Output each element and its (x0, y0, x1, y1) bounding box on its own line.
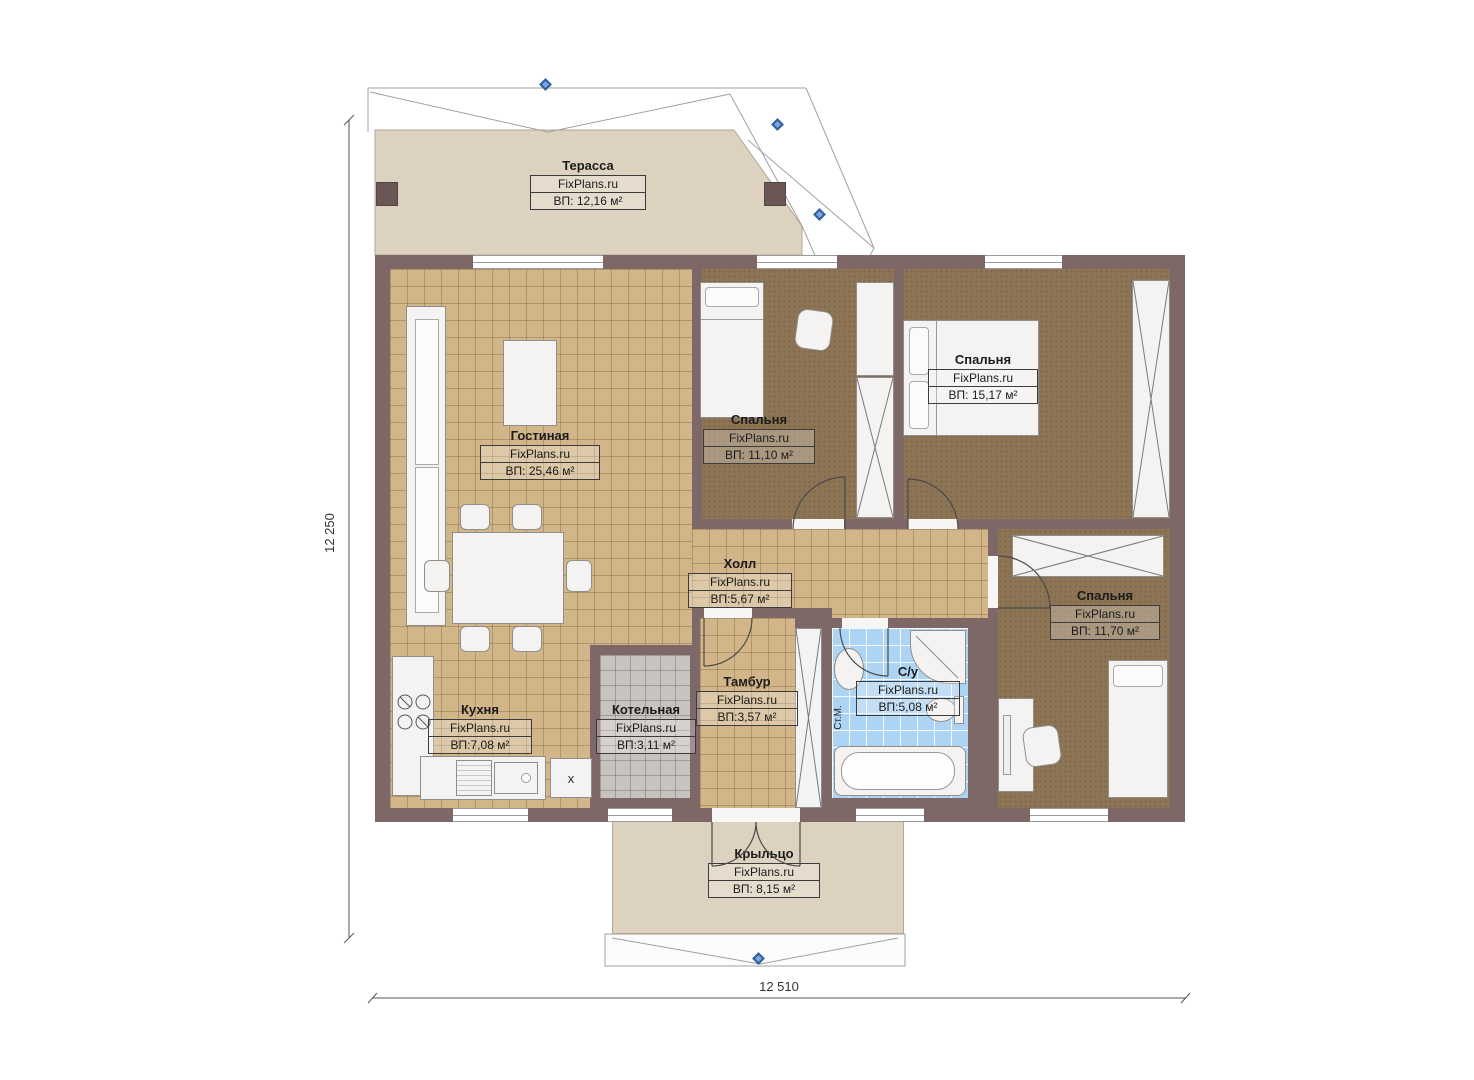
bedroom2-window (757, 255, 837, 269)
terrace-post-right (764, 182, 786, 206)
dining-chair (566, 560, 592, 592)
room-area: ВП:3,11 м² (597, 736, 695, 753)
pillow (705, 287, 759, 307)
wardrobe-bedroom2 (856, 377, 894, 518)
chair-bedroom2 (793, 308, 834, 353)
room-label-bathroom: С/у FixPlans.ruВП:5,08 м² (856, 664, 960, 716)
room-name: Спальня (1050, 588, 1160, 603)
brand-link: FixPlans.ru (481, 446, 599, 462)
pillow (909, 381, 929, 429)
bedroom-right-door-opening (988, 556, 998, 608)
bathroom-door-opening (842, 618, 888, 628)
dining-chair (512, 504, 542, 530)
pillow (909, 327, 929, 375)
room-name: С/у (856, 664, 960, 679)
room-name: Тамбур (696, 674, 798, 689)
room-name: Холл (688, 556, 792, 571)
room-area: ВП: 25,46 м² (481, 462, 599, 479)
wardrobe-bedroom-right (1012, 535, 1164, 577)
room-label-porch: Крыльцо FixPlans.ruВП: 8,15 м² (708, 846, 820, 898)
dimension-left: 12 250 (322, 115, 354, 943)
room-name: Крыльцо (708, 846, 820, 861)
fridge: x (550, 758, 592, 798)
chair-bedroom-right (1021, 724, 1062, 769)
room-name: Гостиная (480, 428, 600, 443)
brand-link: FixPlans.ru (597, 720, 695, 736)
dishwasher (456, 760, 492, 796)
brand-link: FixPlans.ru (531, 176, 645, 192)
room-label-boiler: Котельная FixPlans.ruВП:3,11 м² (596, 702, 696, 754)
floor-plan-canvas: 12 250 12 510 (0, 0, 1474, 1080)
living-window (473, 255, 603, 269)
room-name: Спальня (703, 412, 815, 427)
tv-cabinet (503, 340, 557, 426)
fridge-mark: x (568, 771, 575, 786)
dining-table (452, 532, 564, 624)
room-area: ВП: 8,15 м² (709, 880, 819, 897)
room-area: ВП:5,67 м² (689, 590, 791, 607)
brand-link: FixPlans.ru (429, 720, 531, 736)
dining-chair (460, 626, 490, 652)
room-area: ВП: 12,16 м² (531, 192, 645, 209)
room-name: Кухня (428, 702, 532, 717)
dining-chair (512, 626, 542, 652)
entrance-door-opening (712, 808, 800, 822)
room-area: ВП: 15,17 м² (929, 386, 1037, 403)
brand-link: FixPlans.ru (857, 682, 959, 698)
room-label-bedroom-right: Спальня FixPlans.ruВП: 11,70 м² (1050, 588, 1160, 640)
bathtub (834, 746, 966, 796)
room-area: ВП:7,08 м² (429, 736, 531, 753)
room-area: ВП: 11,70 м² (1051, 622, 1159, 639)
bathroom-window (856, 808, 924, 822)
dimension-left-value: 12 250 (322, 513, 337, 553)
room-area: ВП: 11,10 м² (704, 446, 814, 463)
room-label-bedroom3: Спальня FixPlans.ruВП: 15,17 м² (928, 352, 1038, 404)
brand-link: FixPlans.ru (929, 370, 1037, 386)
bed-single-bedroom2 (700, 282, 764, 418)
dining-chair (424, 560, 450, 592)
bedroom3-door-opening (908, 519, 958, 529)
sofa-cushion (415, 319, 439, 465)
room-name: Котельная (596, 702, 696, 717)
dimension-bottom-value: 12 510 (759, 979, 799, 994)
room-area: ВП:5,08 м² (857, 698, 959, 715)
room-name: Терасса (530, 158, 646, 173)
room-label-bedroom2: Спальня FixPlans.ruВП: 11,10 м² (703, 412, 815, 464)
wardrobe-bedroom3 (1132, 280, 1170, 518)
bedroom2-door-opening (792, 519, 844, 529)
closet-tambour (795, 628, 822, 808)
room-area: ВП:3,57 м² (697, 708, 797, 725)
washing-machine-label: Ст.М. (833, 705, 844, 730)
tambour-door-opening (704, 608, 752, 618)
computer-monitor (1003, 715, 1011, 775)
brand-link: FixPlans.ru (697, 692, 797, 708)
brand-link: FixPlans.ru (704, 430, 814, 446)
terrace-post-left (376, 182, 398, 206)
pillow (1113, 665, 1163, 687)
room-label-terrace: Терасса FixPlans.ruВП: 12,16 м² (530, 158, 646, 210)
kitchen-window (453, 808, 528, 822)
boiler-window (608, 808, 672, 822)
bathtub-basin (841, 752, 955, 790)
bedroom3-window (985, 255, 1062, 269)
blanket-line (701, 319, 763, 320)
kitchen-sink (494, 762, 538, 794)
room-name: Спальня (928, 352, 1038, 367)
desk-bedroom2 (856, 282, 894, 376)
bedroom-right-window (1030, 808, 1108, 822)
sink-drain (521, 773, 531, 783)
room-label-tambour: Тамбур FixPlans.ruВП:3,57 м² (696, 674, 798, 726)
dimension-bottom: 12 510 (368, 979, 1190, 1003)
brand-link: FixPlans.ru (689, 574, 791, 590)
brand-link: FixPlans.ru (1051, 606, 1159, 622)
brand-link: FixPlans.ru (709, 864, 819, 880)
room-label-living: Гостиная FixPlans.ruВП: 25,46 м² (480, 428, 600, 480)
dining-chair (460, 504, 490, 530)
room-label-hall: Холл FixPlans.ruВП:5,67 м² (688, 556, 792, 608)
room-label-kitchen: Кухня FixPlans.ruВП:7,08 м² (428, 702, 532, 754)
bed-single-bedroom-right (1108, 660, 1168, 798)
